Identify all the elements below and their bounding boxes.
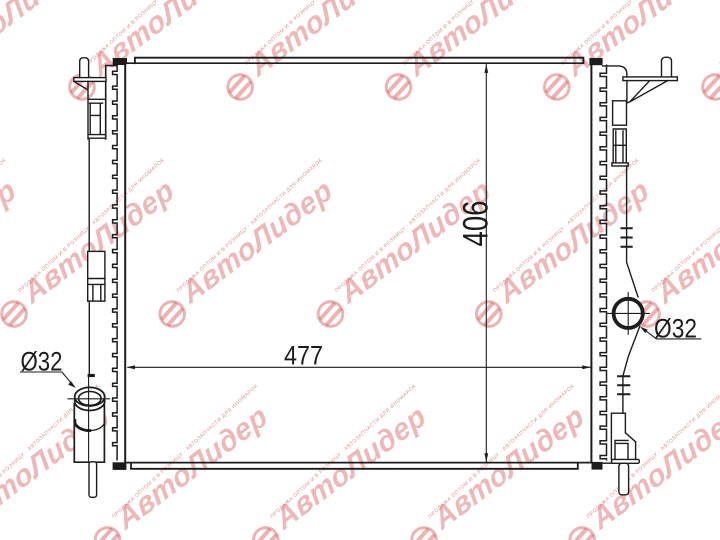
svg-text:477: 477 [284,340,323,370]
svg-text:406: 406 [456,201,495,247]
svg-text:Ø32: Ø32 [21,347,63,377]
svg-text:Ø32: Ø32 [654,314,697,344]
